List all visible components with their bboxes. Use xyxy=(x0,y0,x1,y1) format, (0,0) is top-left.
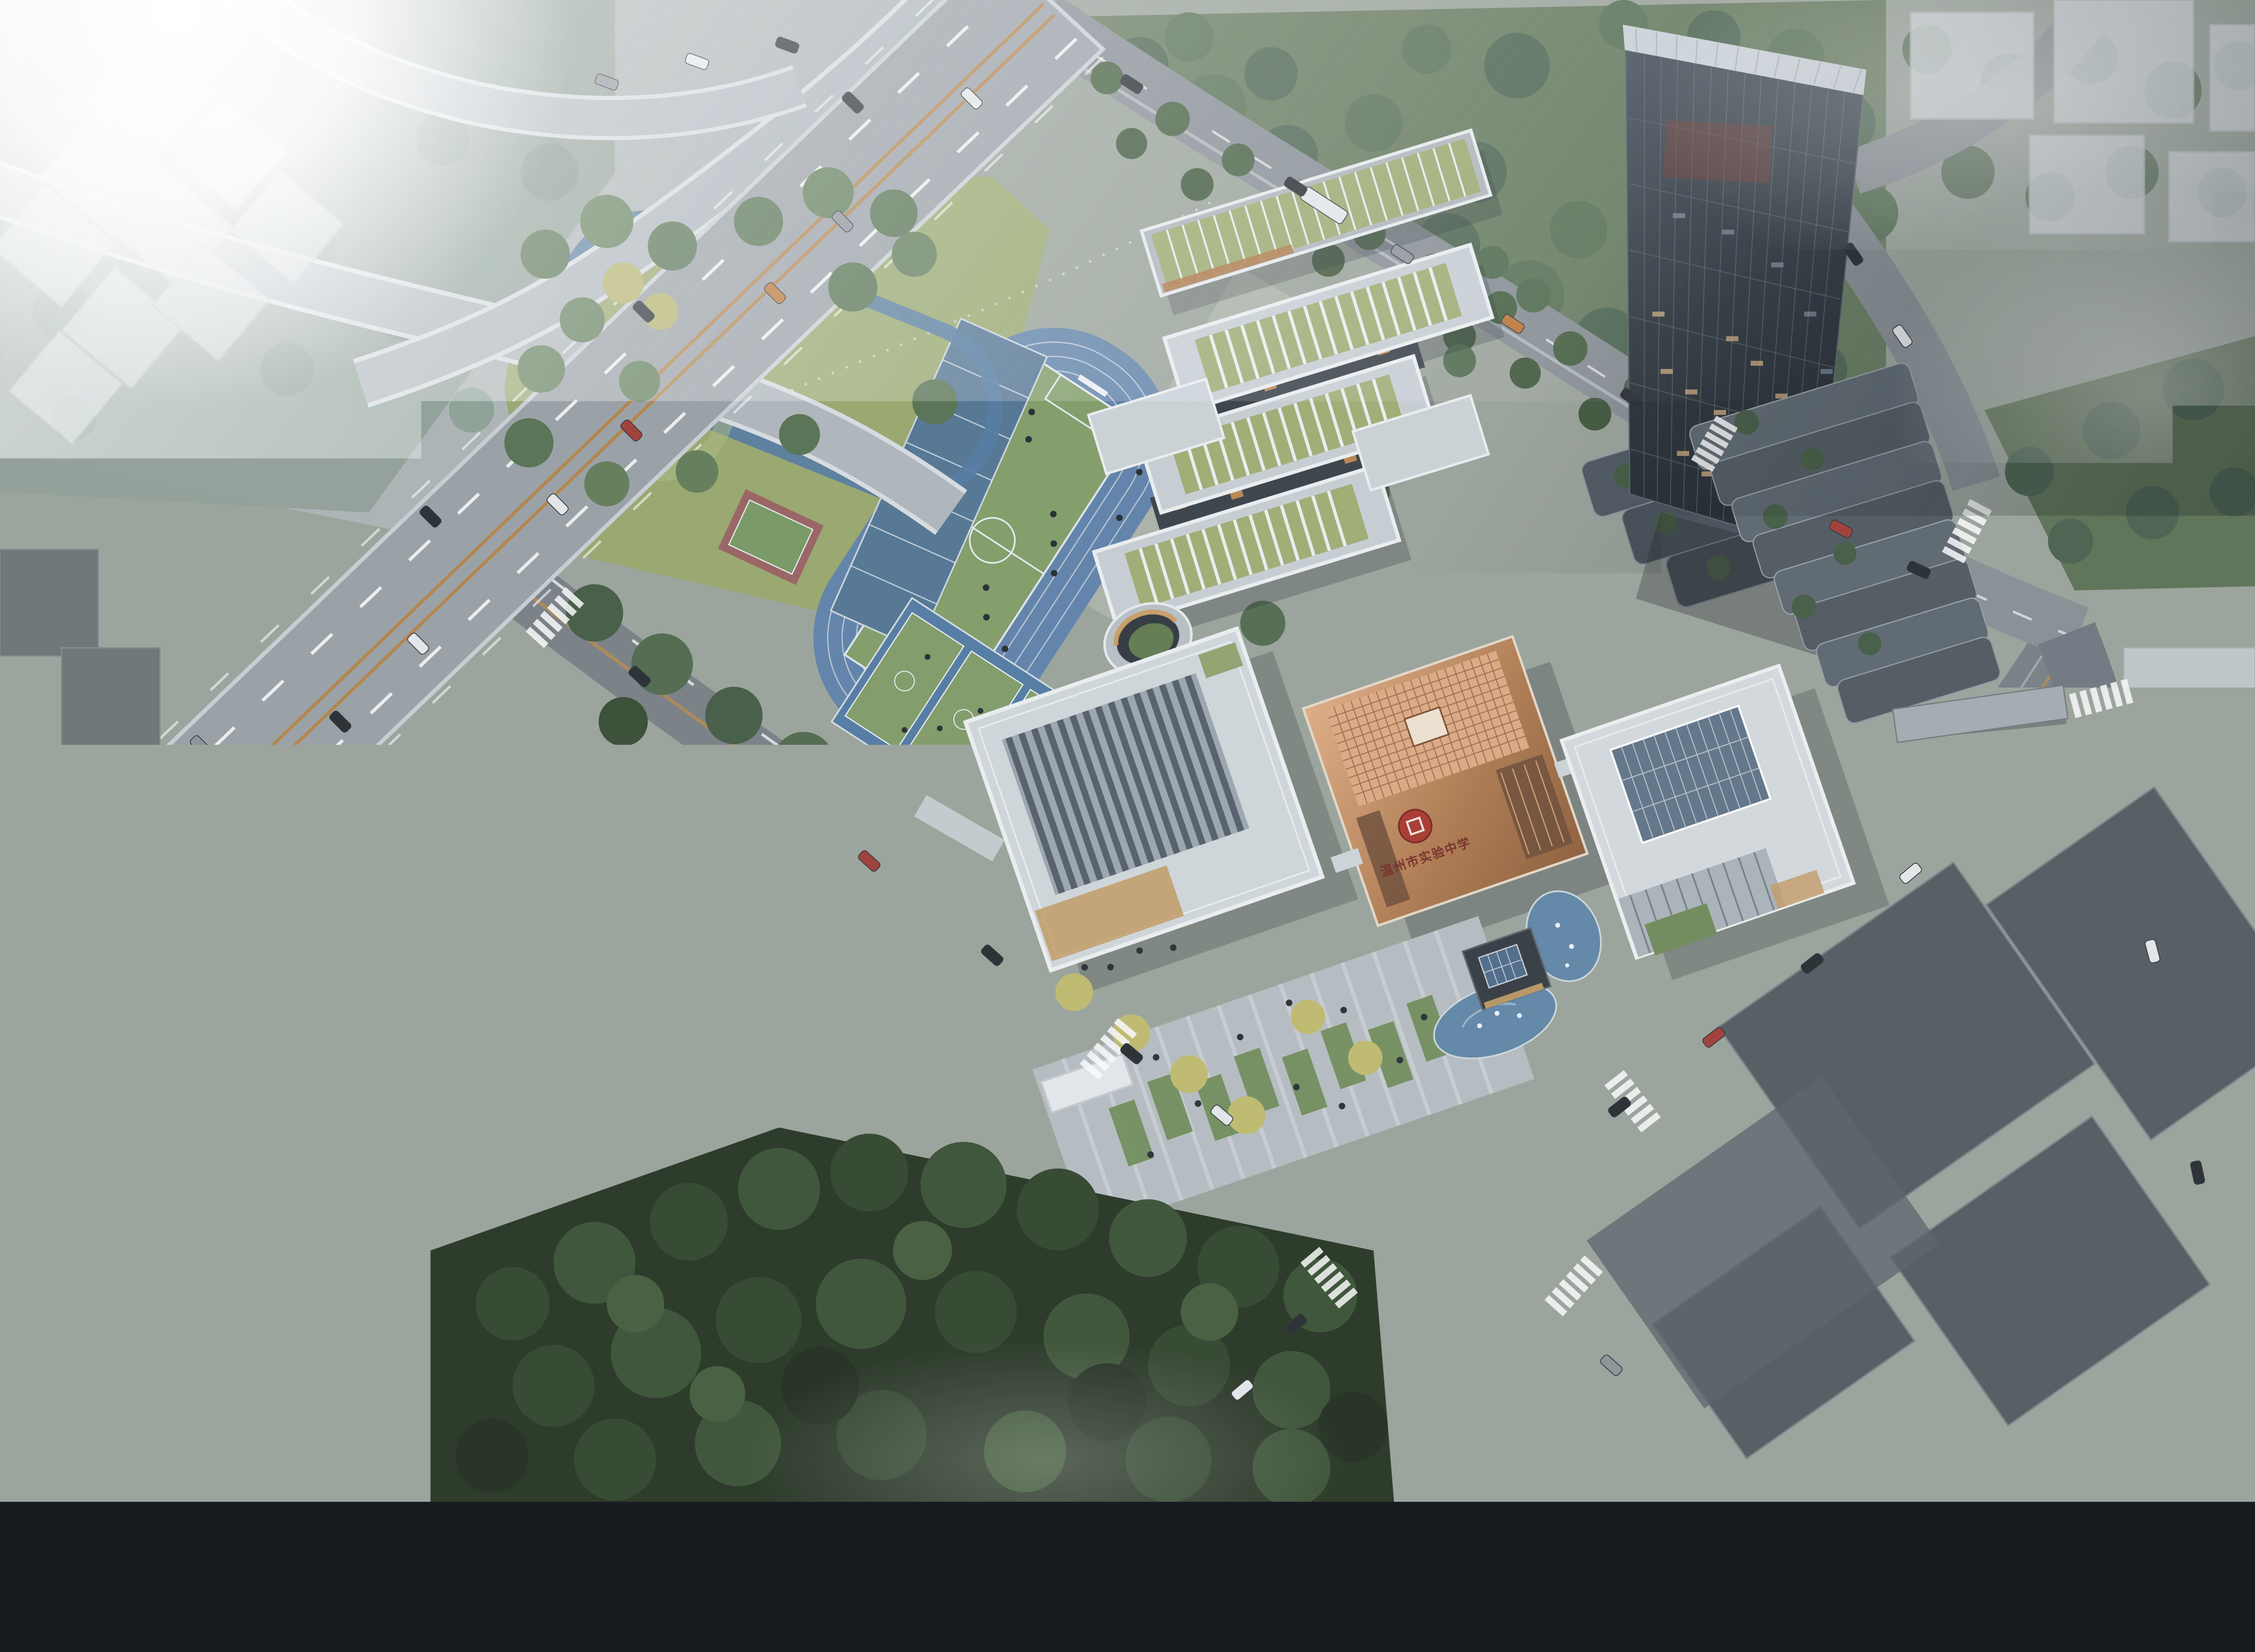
sun-glare xyxy=(0,0,2255,1502)
atmosphere xyxy=(0,0,2255,1502)
scene-svg: 温州市实验中学 xyxy=(0,0,2255,1502)
aerial-render-image: 温州市实验中学 xyxy=(0,0,2255,1502)
